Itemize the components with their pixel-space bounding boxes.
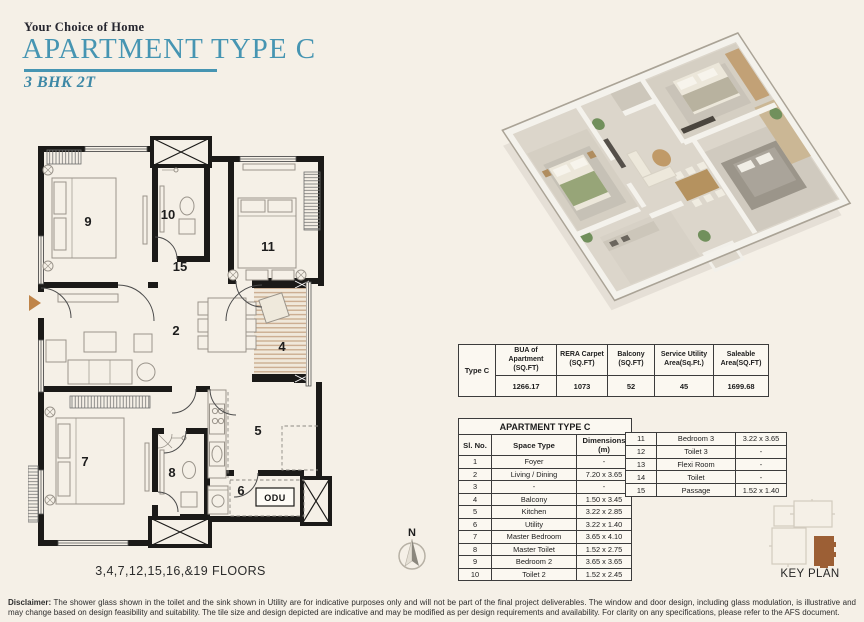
- spec-col-balcony: Balcony (SQ.FT): [608, 345, 655, 376]
- area-spec-table: Type C BUA of Apartment (SQ.FT) RERA Car…: [458, 344, 769, 397]
- table-row: 1Foyer-: [459, 456, 632, 469]
- spec-col-saleable: Saleable Area(SQ.FT): [714, 345, 769, 376]
- spec-col-rera: RERA Carpet (SQ.FT): [557, 345, 608, 376]
- spec-val-rera: 1073: [557, 376, 608, 397]
- compass-north-label: N: [408, 527, 416, 539]
- room-table-title: APARTMENT TYPE C: [459, 419, 632, 435]
- floors-note: 3,4,7,12,15,16,&19 FLOORS: [28, 564, 333, 578]
- compass: N: [392, 523, 432, 579]
- key-plan-highlight-unit: [814, 536, 834, 566]
- key-plan-label: KEY PLAN: [762, 568, 858, 580]
- table-row: 14Toilet-: [626, 471, 787, 484]
- table-row: 15Passage1.52 x 1.40: [626, 484, 787, 497]
- key-plan: [760, 496, 860, 570]
- room-label-8: 8: [168, 465, 175, 480]
- col-dimensions: Dimensions (m): [577, 435, 632, 456]
- page-title: APARTMENT TYPE C: [22, 33, 316, 66]
- spec-val-service: 45: [655, 376, 714, 397]
- disclaimer-body: The shower glass shown in the toilet and…: [8, 598, 856, 617]
- spec-type-cell: Type C: [459, 345, 496, 397]
- spec-col-bua: BUA of Apartment (SQ.FT): [496, 345, 557, 376]
- table-row: 10Toilet 21.52 x 2.45: [459, 568, 632, 581]
- spec-val-saleable: 1699.68: [714, 376, 769, 397]
- render-3d-illustration: [482, 14, 854, 324]
- table-row: 2Living / Dining7.20 x 3.65: [459, 468, 632, 481]
- col-space-type: Space Type: [492, 435, 577, 456]
- spec-col-service: Service Utility Area(Sq.Ft.): [655, 345, 714, 376]
- table-row: 6Utility3.22 x 1.40: [459, 518, 632, 531]
- brochure-page: { "header": { "eyebrow": "Your Choice of…: [0, 0, 864, 622]
- table-row: 7Master Bedroom3.65 x 4.10: [459, 531, 632, 544]
- table-row: 9Bedroom 23.65 x 3.65: [459, 556, 632, 569]
- spec-val-bua: 1266.17: [496, 376, 557, 397]
- room-label-10: 10: [161, 207, 175, 222]
- room-schedule-table-2: 11Bedroom 33.22 x 3.65 12Toilet 3- 13Fle…: [625, 432, 787, 497]
- table-row: 5Kitchen3.22 x 2.85: [459, 506, 632, 519]
- disclaimer-label: Disclaimer:: [8, 598, 51, 607]
- room-label-5: 5: [254, 423, 261, 438]
- title-underline: [24, 69, 217, 72]
- spec-val-balcony: 52: [608, 376, 655, 397]
- room-schedule-table: APARTMENT TYPE C Sl. No. Space Type Dime…: [458, 418, 632, 581]
- table-row: 3--: [459, 481, 632, 494]
- room-label-7: 7: [81, 454, 88, 469]
- table-row: 11Bedroom 33.22 x 3.65: [626, 433, 787, 446]
- disclaimer-text: Disclaimer: The shower glass shown in th…: [8, 598, 856, 619]
- room-label-15: 15: [173, 259, 187, 274]
- table-row: 13Flexi Room-: [626, 458, 787, 471]
- room-label-9: 9: [84, 214, 91, 229]
- unit-type-subtitle: 3 BHK 2T: [24, 74, 96, 92]
- col-slno: Sl. No.: [459, 435, 492, 456]
- room-label-6: 6: [237, 483, 244, 498]
- floor-plan-2d: ODU 9 10 11 15 2 4 5 6 7 8: [28, 132, 333, 560]
- table-row: 8Master Toilet1.52 x 2.75: [459, 543, 632, 556]
- room-label-4: 4: [278, 339, 286, 354]
- table-row: 12Toilet 3-: [626, 445, 787, 458]
- table-row: 4Balcony1.50 x 3.45: [459, 493, 632, 506]
- room-label-11: 11: [261, 239, 275, 254]
- room-label-2: 2: [172, 323, 179, 338]
- odu-label: ODU: [264, 493, 286, 503]
- entry-arrow: [29, 295, 41, 311]
